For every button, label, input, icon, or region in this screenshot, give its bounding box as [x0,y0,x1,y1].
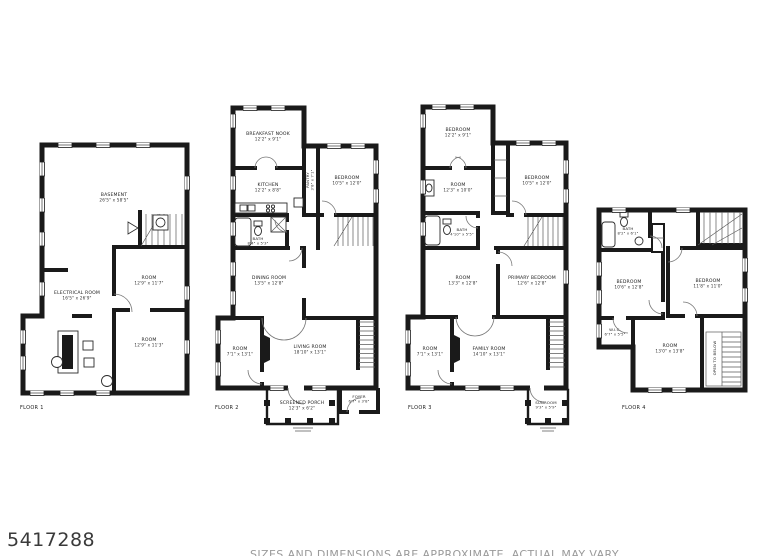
fireplace-icon [262,334,270,364]
floor-3-stairs [524,217,565,367]
room-label-dining-room: DINING ROOM13'5" x 12'8" [252,275,286,286]
floor-1-plan: BASEMENT26'5" x 58'5" ROOM12'9" x 11'7" … [20,143,190,412]
floor-3-sunroom [525,390,568,431]
floor-3-plan: BEDROOM12'2" x 9'1" ROOM12'3" x 10'0" BE… [406,105,569,432]
room-label-basement: BASEMENT26'5" x 58'5" [99,192,128,203]
floor-1-label: FLOOR 1 [20,405,44,411]
bathtub-icon [425,216,440,245]
toilet-icon [443,219,451,224]
room-label-wic: W.I.C.6'7" x 5'5" [605,327,626,337]
bathtub-icon [602,222,615,247]
disclaimer-text: SIZES AND DIMENSIONS ARE APPROXIMATE. AC… [250,548,621,556]
room-label-sunroom: SUNROOM9'3" x 5'9" [535,400,556,410]
room-label-bath-f3: BATH4'10" x 5'5" [450,227,474,237]
room-label-family-room: FAMILY ROOM14'10" x 13'1" [473,346,506,357]
room-label-room-1: ROOM12'9" x 11'7" [134,275,163,286]
room-label-bedroom-r-f4: BEDROOM11'8" x 11'0" [693,278,722,289]
open-to-below-label: OPEN TO BELOW [712,341,717,376]
room-label-bath-f4: BATH8'2" x 6'1" [618,226,639,236]
toilet-icon [254,221,262,226]
room-label-bedroom-tl-f3: BEDROOM12'2" x 9'1" [445,127,471,138]
sink-icon [240,205,247,211]
room-label-room-tl-f3: ROOM12'3" x 10'0" [443,182,472,193]
room-label-kitchen: KITCHEN12'2" x 8'8" [255,182,281,193]
floor-4-outer-walls [599,210,745,390]
room-label-bedroom-f2: BEDROOM10'5" x 12'0" [332,175,361,186]
room-label-living-room: LIVING ROOM18'10" x 13'1" [294,344,327,355]
room-label-electrical-room: ELECTRICAL ROOM16'5" x 26'9" [54,290,100,301]
room-label-breakfast-nook: BREAKFAST NOOK12'2" x 9'1" [246,131,291,142]
sink-icon [248,205,255,211]
room-label-room-f4: ROOM13'0" x 13'8" [655,343,684,354]
floorplan-sheet: BASEMENT26'5" x 58'5" ROOM12'9" x 11'7" … [0,0,768,556]
stairs-direction-arrow-icon [128,222,138,234]
floor-4-label: FLOOR 4 [622,405,646,411]
fireplace-icon [452,334,460,364]
tank-icon [102,376,113,387]
utility-box-icon [83,341,93,350]
room-label-foyer: FOYER6'7" x 3'8" [349,394,370,404]
floor-2-stairs [334,217,375,367]
floor-3-label: FLOOR 3 [408,405,432,411]
floor-4-interior-walls [599,210,745,390]
appliance-icon [294,198,303,207]
sink-icon [635,237,643,245]
tank-icon [52,357,63,368]
floor-2-label: FLOOR 2 [215,405,239,411]
listing-id: 5417288 [7,529,95,551]
closet-shelves [494,160,507,196]
room-label-screened-porch: SCREENED PORCH12'3" x 6'2" [280,400,325,411]
utility-box-icon [84,358,94,367]
room-label-room-bl-f3: ROOM7'1" x 13'1" [417,346,443,357]
floor-2-plan: BREAKFAST NOOK12'2" x 9'1" KITCHEN12'2" … [215,106,379,432]
floor-1-fixtures [52,215,169,387]
room-label-room-mid-f3: ROOM13'3" x 12'8" [448,275,477,286]
room-label-bedroom-tr-f3: BEDROOM10'5" x 12'0" [522,175,551,186]
room-label-room-f2: ROOM7'1" x 13'1" [227,346,253,357]
floor-4-stairs [698,212,742,386]
floor-2-kitchen-fixtures [235,198,303,213]
room-label-bedroom-l-f4: BEDROOM10'6" x 12'8" [614,279,643,290]
room-label-room-2: ROOM12'9" x 11'3" [134,337,163,348]
floor-4-plan: BATH8'2" x 6'1" BEDROOM10'6" x 12'8" BED… [597,208,748,412]
room-label-primary-bedroom: PRIMARY BEDROOM12'6" x 12'8" [508,275,556,286]
room-label-pantry: PANTRY3'8" x 7'1" [305,169,315,190]
stove-burner-icon [266,205,269,208]
floorplans-svg: BASEMENT26'5" x 58'5" ROOM12'9" x 11'7" … [0,0,768,556]
